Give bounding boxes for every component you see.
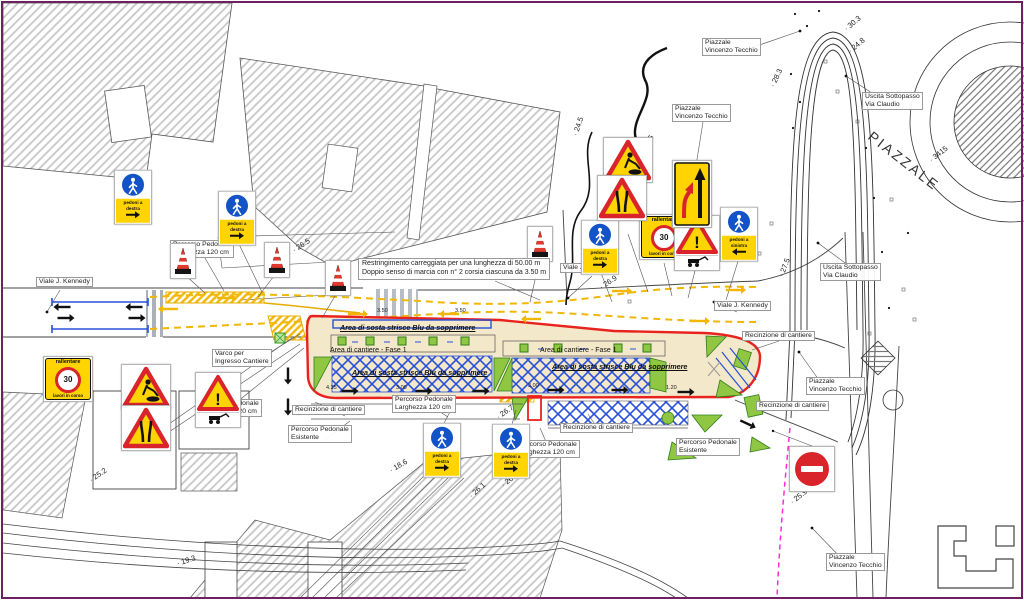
site-linework [0, 0, 1024, 600]
works-note-line1: Restringimento carreggiata per una lungh… [362, 260, 546, 269]
works-note: Restringimento carreggiata per una lungh… [358, 258, 550, 280]
works-note-line2: Doppio senso di marcia con n° 2 corsia c… [362, 269, 546, 278]
site-plan-canvas[interactable]: PiazzaleVincenzo TecchioPiazzaleVincenzo… [0, 0, 1024, 600]
